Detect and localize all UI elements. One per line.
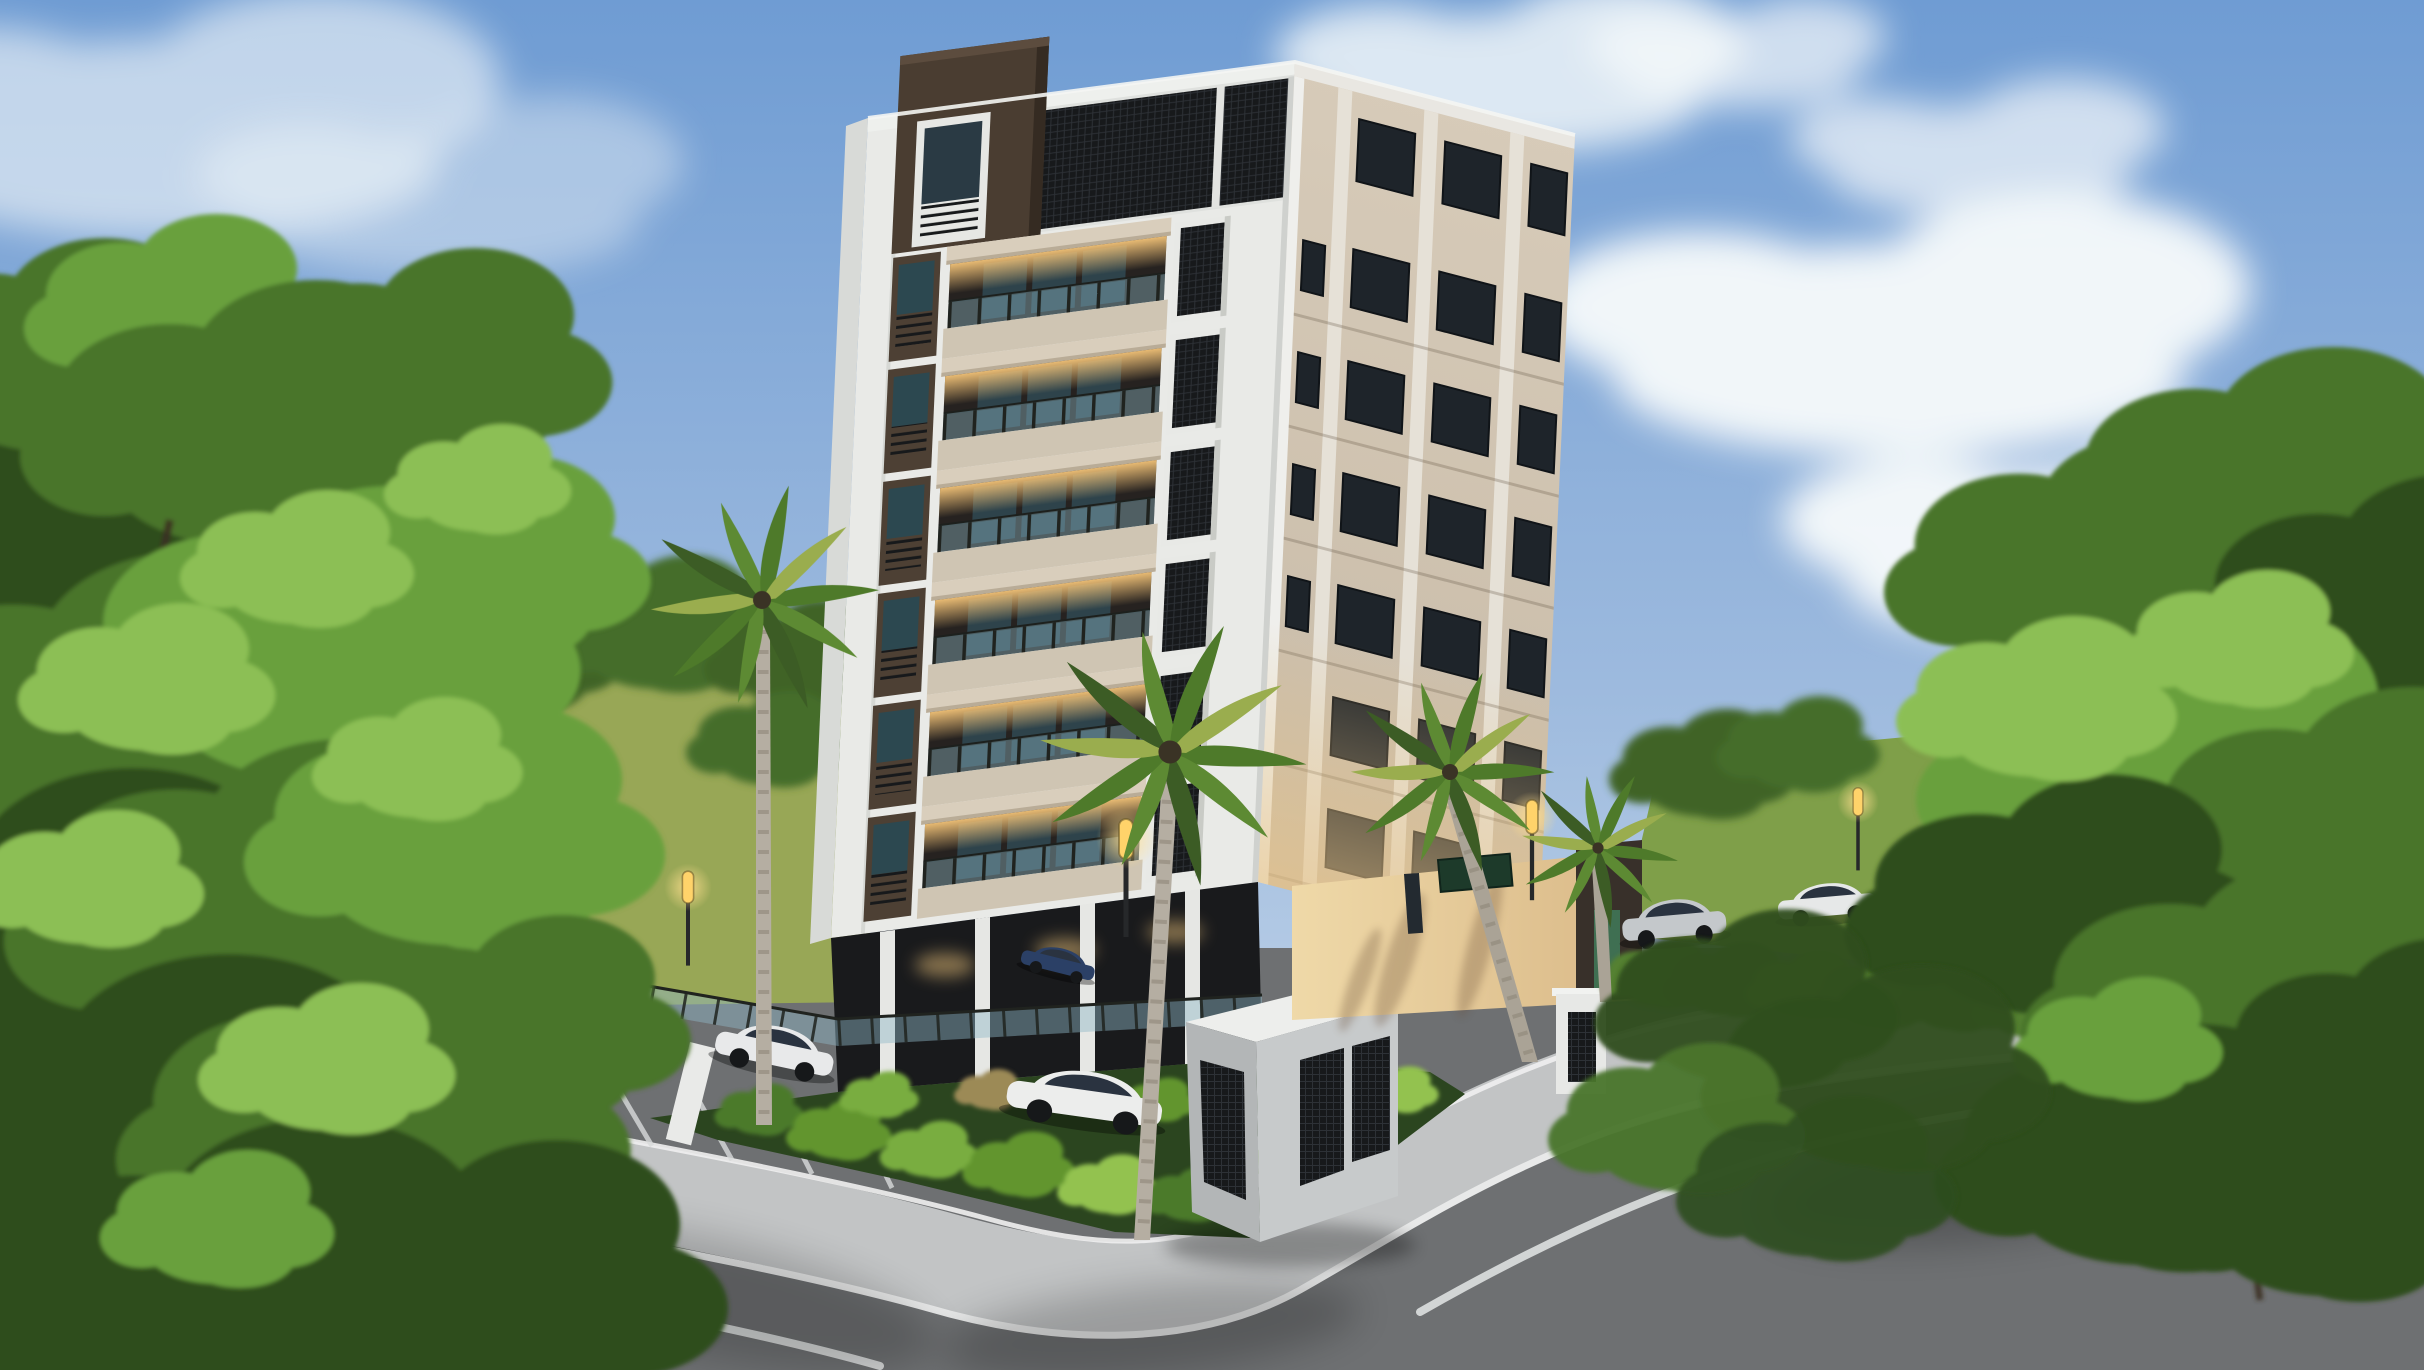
architectural-render	[0, 0, 2424, 1370]
cube-louver	[1300, 1048, 1344, 1186]
cube-louver	[1200, 1060, 1246, 1200]
render-canvas	[0, 0, 2424, 1370]
rooftop-tower	[891, 37, 1049, 255]
cube-louver	[1352, 1036, 1390, 1162]
